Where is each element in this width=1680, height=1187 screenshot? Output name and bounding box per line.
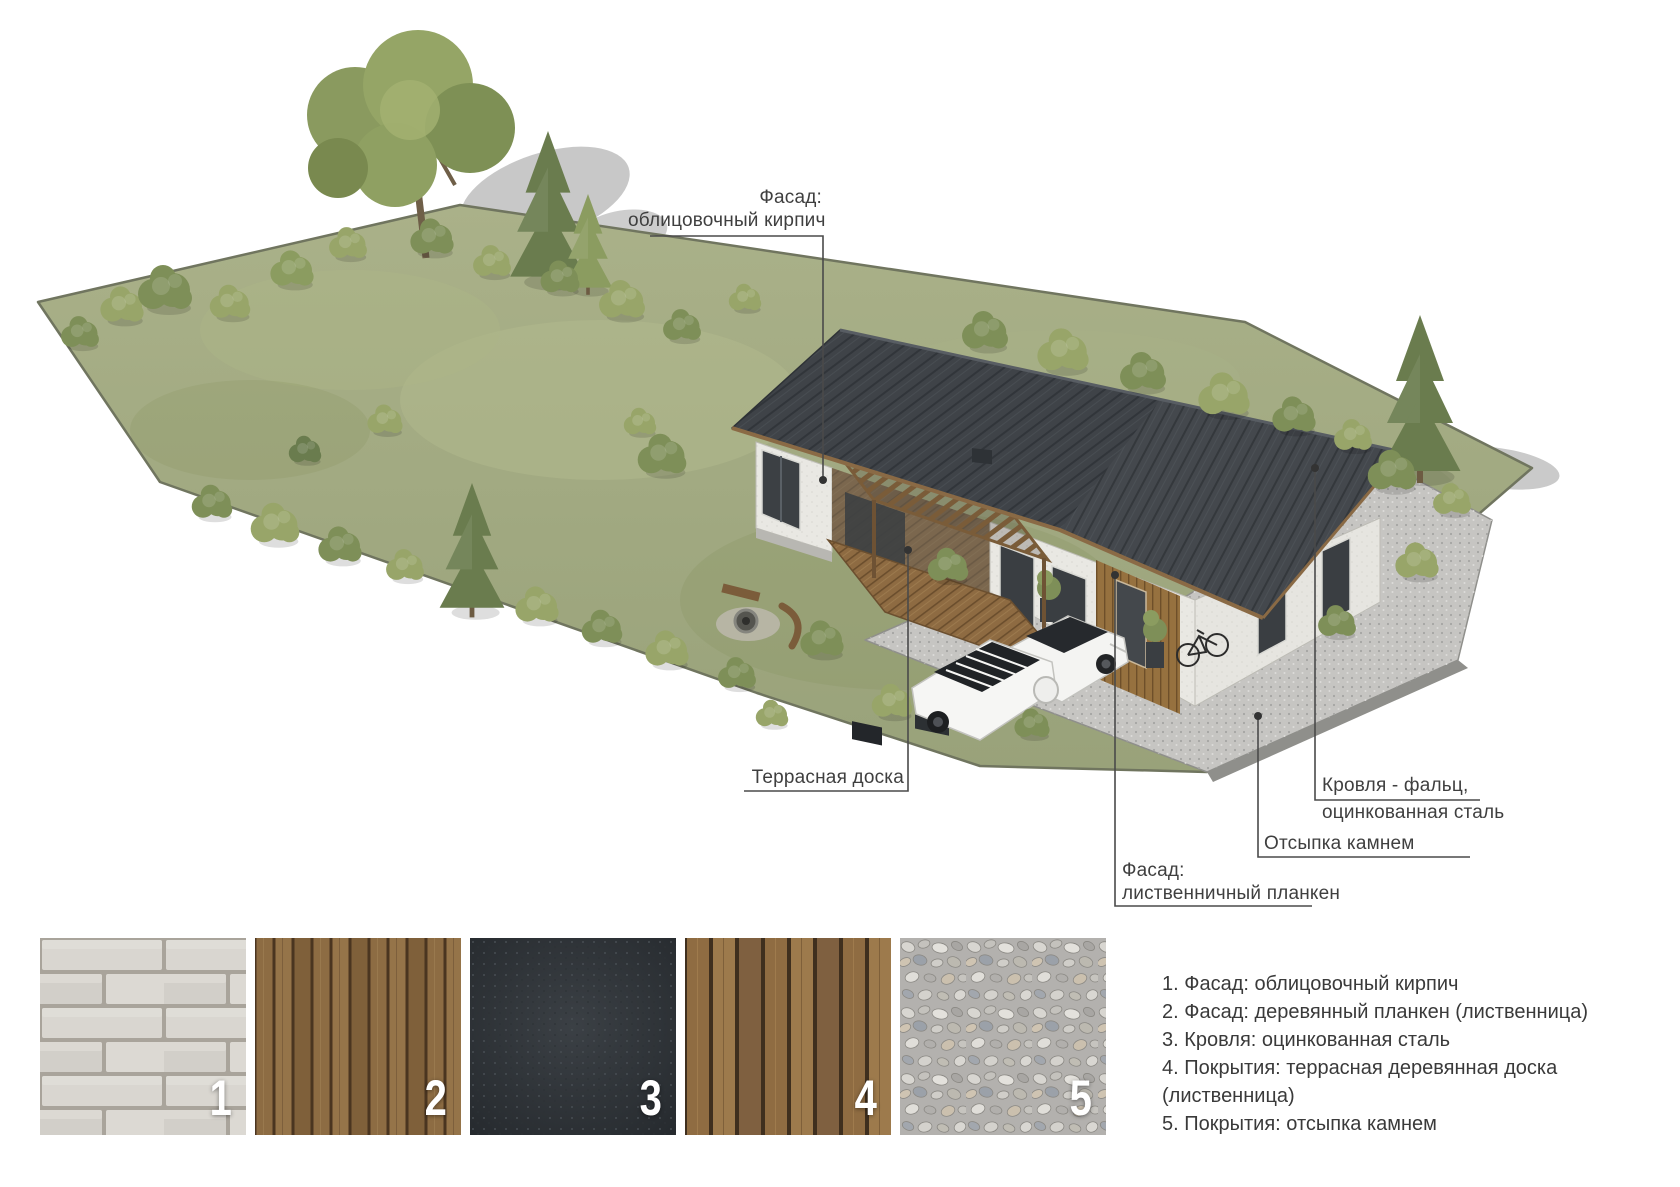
- callout-facade-plank: Фасад: лиственничный планкен: [1122, 859, 1340, 905]
- swatch-number-2: 2: [425, 1069, 447, 1127]
- materials-legend: 1. Фасад: облицовочный кирпич 2. Фасад: …: [1162, 970, 1680, 1138]
- callout-stone-fill-label: Отсыпка камнем: [1264, 832, 1415, 855]
- callout-roof-line2: оцинкованная сталь: [1322, 801, 1504, 824]
- legend-item-1: 1. Фасад: облицовочный кирпич: [1162, 970, 1680, 998]
- callout-facade-plank-line1: Фасад:: [1122, 859, 1340, 882]
- swatch-number-5: 5: [1070, 1069, 1092, 1127]
- swatch-galvanized-steel: 3: [470, 938, 676, 1135]
- callout-facade-brick-line2: облицовочный кирпич: [628, 209, 822, 232]
- chimney: [972, 448, 992, 464]
- legend-item-2: 2. Фасад: деревянный планкен (лиственниц…: [1162, 998, 1680, 1026]
- callout-terrace-deck-label: Террасная доска: [744, 766, 904, 789]
- callout-facade-plank-line2: лиственничный планкен: [1122, 882, 1340, 905]
- legend-item-5: 5. Покрытия: отсыпка камнем: [1162, 1110, 1680, 1138]
- callout-stone-fill: Отсыпка камнем: [1264, 832, 1415, 855]
- callout-terrace-deck: Террасная доска: [744, 766, 904, 789]
- legend-item-3: 3. Кровля: оцинкованная сталь: [1162, 1026, 1680, 1054]
- callout-roof: Кровля - фальц, оцинкованная сталь: [1322, 774, 1504, 824]
- callout-facade-brick-line1: Фасад:: [628, 186, 822, 209]
- swatch-wood-plank-larch: 2: [255, 938, 461, 1135]
- swatch-number-1: 1: [210, 1069, 232, 1127]
- callout-facade-brick: Фасад: облицовочный кирпич: [628, 186, 822, 232]
- architectural-site-visualization: Фасад: облицовочный кирпич Террасная дос…: [0, 0, 1680, 1187]
- swatch-terrace-board: 4: [685, 938, 891, 1135]
- swatch-number-4: 4: [855, 1069, 877, 1127]
- swatch-facing-brick: 1: [40, 938, 246, 1135]
- swatch-stone-gravel: 5: [900, 938, 1106, 1135]
- legend-item-4: 4. Покрытия: террасная деревянная доска …: [1162, 1054, 1680, 1110]
- callout-roof-line1: Кровля - фальц,: [1322, 774, 1504, 797]
- swatch-number-3: 3: [640, 1069, 662, 1127]
